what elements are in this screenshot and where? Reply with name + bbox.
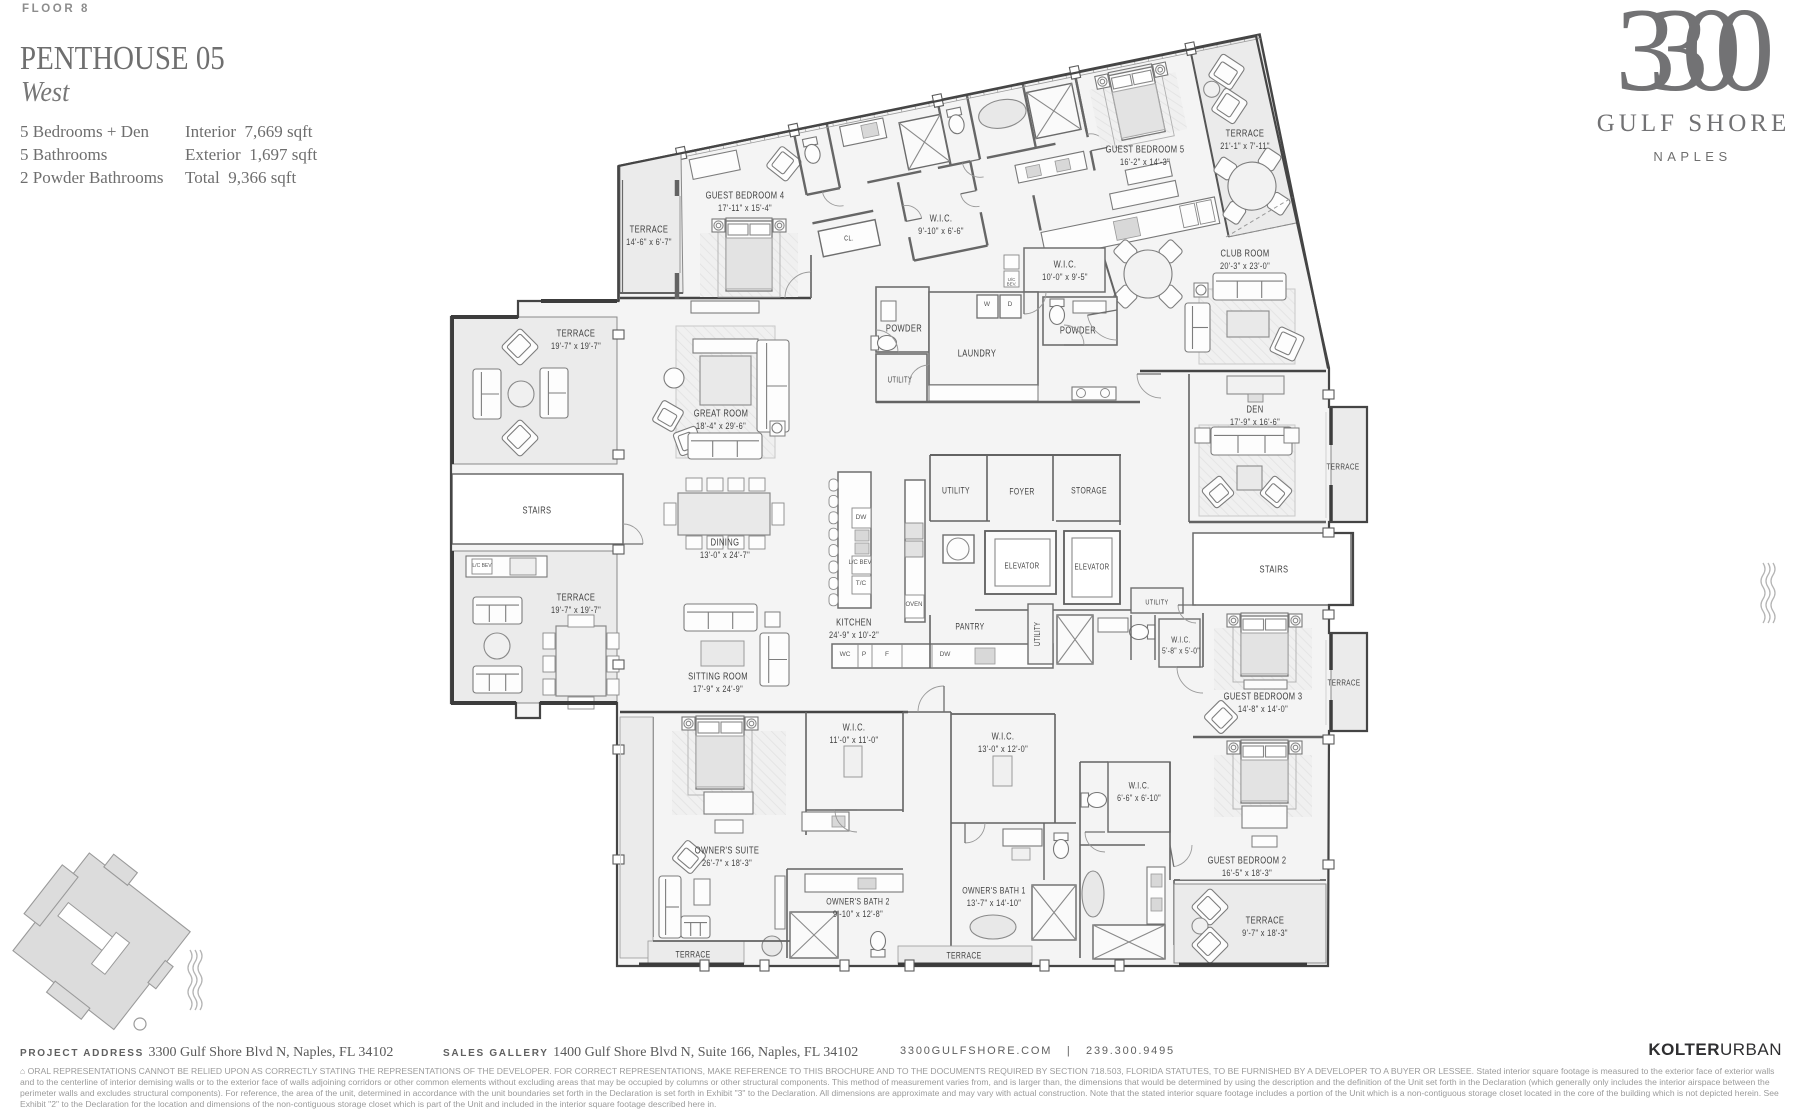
- svg-text:TERRACE: TERRACE: [1246, 914, 1285, 925]
- svg-text:STAIRS: STAIRS: [523, 504, 552, 515]
- svg-text:24'-9" x 10'-2": 24'-9" x 10'-2": [829, 629, 879, 640]
- svg-text:GREAT ROOM: GREAT ROOM: [694, 407, 749, 418]
- svg-text:STAIRS: STAIRS: [1260, 563, 1289, 574]
- svg-text:GUEST BEDROOM 4: GUEST BEDROOM 4: [706, 189, 785, 200]
- svg-text:POWDER: POWDER: [886, 322, 922, 333]
- svg-text:20'-3" x 23'-0": 20'-3" x 23'-0": [1220, 260, 1270, 271]
- svg-text:OWNER'S BATH 2: OWNER'S BATH 2: [826, 897, 889, 907]
- svg-text:DW: DW: [856, 514, 868, 521]
- svg-text:14'-6" x 6'-7": 14'-6" x 6'-7": [626, 236, 672, 247]
- svg-text:ELEVATOR: ELEVATOR: [1074, 562, 1109, 572]
- svg-text:W.I.C.: W.I.C.: [1171, 635, 1191, 645]
- svg-text:W.I.C.: W.I.C.: [843, 721, 866, 732]
- svg-text:19'-7" x 19'-7": 19'-7" x 19'-7": [551, 604, 601, 615]
- svg-text:17'-9" x 24'-9": 17'-9" x 24'-9": [693, 683, 743, 694]
- svg-text:21'-1" x 7'-11": 21'-1" x 7'-11": [1220, 140, 1270, 151]
- svg-text:W.I.C.: W.I.C.: [930, 212, 953, 223]
- svg-text:DINING: DINING: [711, 536, 740, 547]
- svg-text:OWNER'S SUITE: OWNER'S SUITE: [695, 844, 760, 855]
- svg-text:TERRACE: TERRACE: [1226, 127, 1265, 138]
- svg-text:9'-7" x 18'-3": 9'-7" x 18'-3": [1242, 927, 1288, 938]
- svg-text:POWDER: POWDER: [1060, 324, 1096, 335]
- svg-text:PANTRY: PANTRY: [955, 622, 984, 632]
- svg-text:CLUB ROOM: CLUB ROOM: [1220, 247, 1269, 258]
- svg-text:6'-6" x 6'-10": 6'-6" x 6'-10": [1117, 793, 1161, 803]
- svg-text:14'-8" x 14'-0": 14'-8" x 14'-0": [1238, 703, 1288, 714]
- svg-text:13'-7" x 14'-10": 13'-7" x 14'-10": [967, 897, 1021, 908]
- svg-text:WC: WC: [840, 651, 851, 658]
- svg-text:L/C BEV: L/C BEV: [472, 563, 492, 569]
- svg-text:UTILITY: UTILITY: [1034, 622, 1042, 646]
- svg-text:D: D: [1008, 301, 1013, 308]
- svg-text:STORAGE: STORAGE: [1071, 486, 1107, 496]
- svg-text:TERRACE: TERRACE: [675, 950, 710, 960]
- svg-text:W.I.C.: W.I.C.: [992, 730, 1015, 741]
- svg-text:TERRACE: TERRACE: [1327, 462, 1360, 472]
- svg-text:TERRACE: TERRACE: [630, 223, 669, 234]
- svg-text:UTILITY: UTILITY: [942, 486, 970, 496]
- svg-text:19'-7" x 19'-7": 19'-7" x 19'-7": [551, 340, 601, 351]
- svg-text:TERRACE: TERRACE: [1328, 678, 1361, 688]
- svg-text:10'-0" x 9'-5": 10'-0" x 9'-5": [1042, 271, 1088, 282]
- svg-text:TERRACE: TERRACE: [946, 951, 981, 961]
- svg-text:17'-11" x 15'-4": 17'-11" x 15'-4": [718, 202, 772, 213]
- svg-text:16'-5" x 18'-3": 16'-5" x 18'-3": [1222, 867, 1272, 878]
- svg-text:13'-0" x 24'-7": 13'-0" x 24'-7": [700, 549, 750, 560]
- svg-text:W.I.C.: W.I.C.: [1054, 258, 1077, 269]
- svg-text:11'-0" x 11'-0": 11'-0" x 11'-0": [830, 734, 879, 745]
- svg-text:BEV.: BEV.: [1007, 282, 1017, 287]
- svg-text:9'-10" x 12'-8": 9'-10" x 12'-8": [833, 908, 883, 919]
- svg-text:W.I.C.: W.I.C.: [1129, 781, 1150, 791]
- svg-text:ELEVATOR: ELEVATOR: [1004, 561, 1039, 571]
- svg-text:KITCHEN: KITCHEN: [836, 616, 872, 627]
- svg-text:GUEST BEDROOM 5: GUEST BEDROOM 5: [1106, 143, 1185, 154]
- svg-text:TERRACE: TERRACE: [557, 327, 596, 338]
- svg-text:5'-8" x 5'-0": 5'-8" x 5'-0": [1162, 646, 1200, 656]
- svg-text:LAUNDRY: LAUNDRY: [958, 347, 997, 358]
- svg-text:OWNER'S BATH 1: OWNER'S BATH 1: [962, 886, 1025, 896]
- svg-text:P: P: [862, 651, 866, 658]
- svg-text:GUEST BEDROOM 3: GUEST BEDROOM 3: [1224, 690, 1303, 701]
- svg-text:UTILITY: UTILITY: [1145, 599, 1168, 607]
- svg-text:T/C: T/C: [856, 580, 867, 587]
- svg-text:13'-0" x 12'-0": 13'-0" x 12'-0": [978, 743, 1028, 754]
- svg-text:DW: DW: [940, 651, 952, 658]
- svg-text:TERRACE: TERRACE: [557, 591, 596, 602]
- svg-text:W: W: [984, 301, 991, 308]
- svg-text:CL.: CL.: [844, 235, 854, 243]
- svg-text:17'-9" x 16'-6": 17'-9" x 16'-6": [1230, 416, 1280, 427]
- svg-text:9'-10" x 6'-6": 9'-10" x 6'-6": [918, 225, 964, 236]
- svg-text:L/C BEV: L/C BEV: [848, 560, 871, 566]
- svg-text:OVEN: OVEN: [905, 602, 922, 608]
- svg-text:GUEST BEDROOM 2: GUEST BEDROOM 2: [1208, 854, 1287, 865]
- svg-text:18'-4" x 29'-6": 18'-4" x 29'-6": [696, 420, 746, 431]
- svg-text:16'-2" x 14'-3": 16'-2" x 14'-3": [1120, 156, 1170, 167]
- svg-text:SITTING ROOM: SITTING ROOM: [688, 670, 748, 681]
- svg-text:DEN: DEN: [1246, 403, 1263, 414]
- svg-text:F: F: [885, 651, 889, 658]
- svg-text:FOYER: FOYER: [1009, 487, 1034, 497]
- svg-text:26'-7" x 18'-3": 26'-7" x 18'-3": [702, 857, 752, 868]
